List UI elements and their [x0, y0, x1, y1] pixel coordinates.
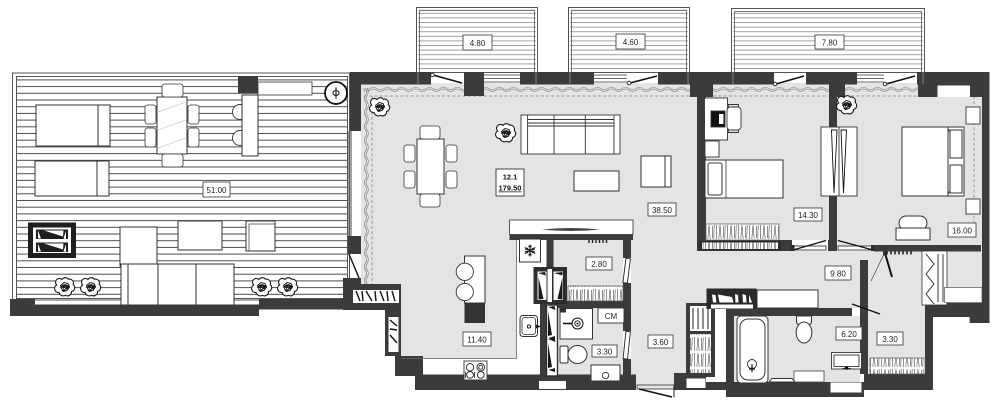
svg-text:179.50: 179.50 — [499, 184, 522, 193]
svg-text:9.80: 9.80 — [830, 270, 846, 279]
svg-text:7.80: 7.80 — [822, 39, 838, 48]
svg-text:51.00: 51.00 — [206, 186, 227, 195]
svg-text:12.1: 12.1 — [503, 173, 518, 182]
svg-text:CM: CM — [605, 312, 618, 321]
svg-text:3.60: 3.60 — [653, 338, 669, 347]
svg-text:4.60: 4.60 — [623, 38, 639, 47]
svg-text:14.30: 14.30 — [798, 211, 819, 220]
svg-text:2.80: 2.80 — [591, 260, 607, 269]
svg-text:16.00: 16.00 — [952, 227, 973, 236]
svg-text:3.30: 3.30 — [882, 335, 898, 344]
svg-text:3.30: 3.30 — [597, 348, 613, 357]
svg-text:11.40: 11.40 — [467, 336, 487, 345]
svg-text:6.20: 6.20 — [841, 330, 857, 339]
svg-text:4.80: 4.80 — [470, 39, 486, 48]
svg-text:38.50: 38.50 — [652, 206, 673, 215]
